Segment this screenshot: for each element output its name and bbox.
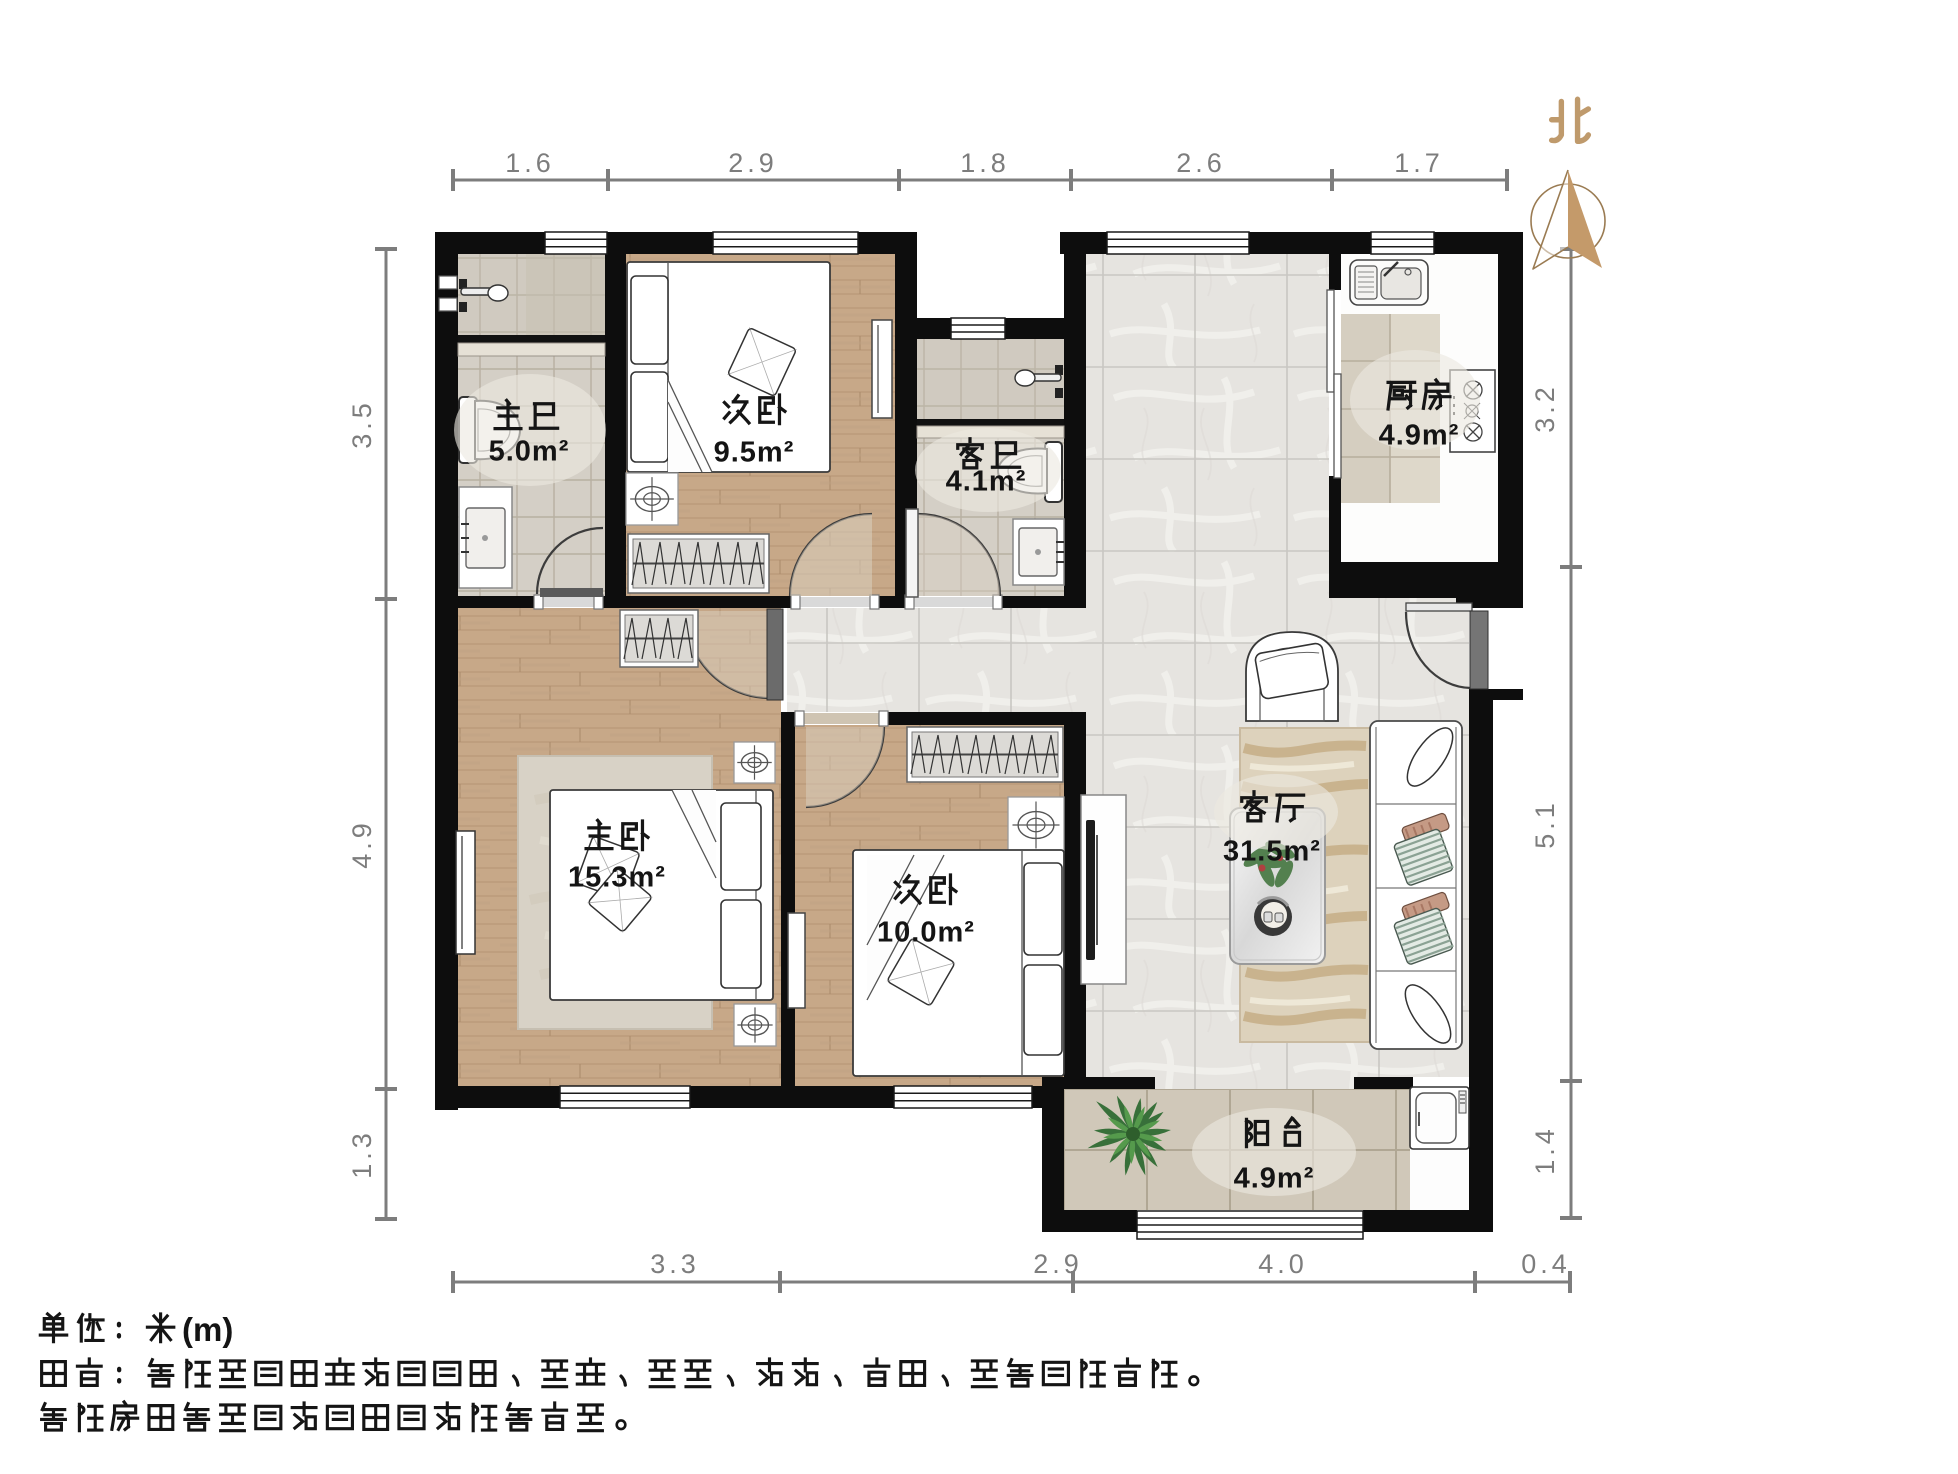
svg-text:3.2: 3.2 [1530,383,1560,433]
svg-text:3.3: 3.3 [650,1249,700,1279]
svg-text:4.9m²: 4.9m² [1379,419,1460,451]
svg-text:15.3m²: 15.3m² [568,861,666,893]
svg-text:2.6: 2.6 [1176,148,1226,178]
svg-text:4.1m²: 4.1m² [946,465,1027,497]
svg-text:1.4: 1.4 [1530,1125,1560,1175]
svg-text:(m): (m) [182,1311,233,1348]
svg-text:10.0m²: 10.0m² [877,916,975,948]
svg-text:1.6: 1.6 [505,148,555,178]
svg-text:1.7: 1.7 [1394,148,1444,178]
svg-text:4.0: 4.0 [1258,1249,1308,1279]
svg-text:0.4: 0.4 [1521,1249,1571,1279]
svg-text:1.3: 1.3 [347,1129,377,1179]
svg-text:9.5m²: 9.5m² [714,436,795,468]
svg-text:31.5m²: 31.5m² [1223,835,1321,867]
svg-text:1.8: 1.8 [960,148,1010,178]
svg-text:5.0m²: 5.0m² [489,435,570,467]
svg-text:2.9: 2.9 [728,148,778,178]
svg-text:4.9m²: 4.9m² [1234,1162,1315,1194]
svg-text:3.5: 3.5 [347,399,377,449]
svg-text:4.9: 4.9 [347,819,377,869]
svg-text:2.9: 2.9 [1033,1249,1083,1279]
svg-text:5.1: 5.1 [1530,799,1560,849]
